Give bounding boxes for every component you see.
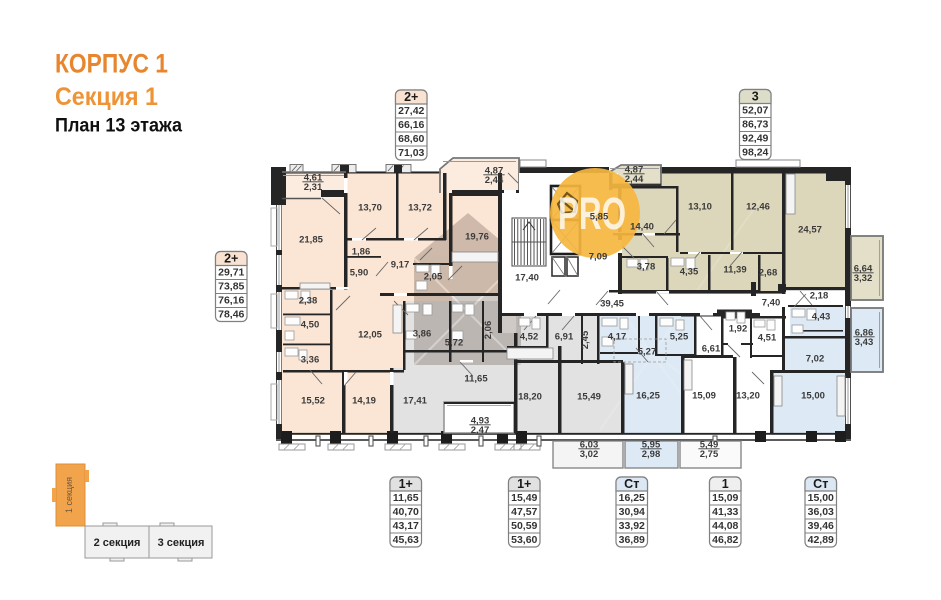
svg-text:11,65: 11,65 [464, 373, 488, 384]
svg-text:66,16: 66,16 [398, 119, 424, 131]
svg-text:2,68: 2,68 [759, 267, 778, 278]
svg-text:42,89: 42,89 [808, 534, 834, 546]
svg-text:16,25: 16,25 [636, 390, 660, 401]
svg-text:3,32: 3,32 [854, 273, 873, 284]
svg-text:45,63: 45,63 [393, 534, 419, 546]
svg-text:78,46: 78,46 [218, 309, 244, 321]
svg-text:2,38: 2,38 [299, 295, 318, 306]
svg-text:КОРПУС 1: КОРПУС 1 [55, 49, 168, 79]
svg-text:1+: 1+ [517, 477, 531, 491]
svg-text:3,02: 3,02 [580, 449, 599, 460]
svg-text:68,60: 68,60 [398, 133, 424, 145]
svg-text:15,09: 15,09 [712, 492, 738, 504]
svg-text:7,02: 7,02 [806, 353, 825, 364]
svg-text:2,18: 2,18 [810, 290, 829, 301]
svg-text:4,50: 4,50 [301, 319, 320, 330]
svg-text:12,46: 12,46 [746, 201, 770, 212]
svg-text:50,59: 50,59 [511, 520, 537, 532]
svg-text:4,51: 4,51 [758, 332, 777, 343]
svg-text:17,40: 17,40 [515, 272, 539, 283]
svg-text:3: 3 [752, 90, 759, 104]
svg-text:24,57: 24,57 [798, 224, 822, 235]
svg-text:15,49: 15,49 [577, 391, 601, 402]
svg-text:2,44: 2,44 [485, 175, 504, 186]
svg-text:47,57: 47,57 [511, 506, 537, 518]
svg-text:2,06: 2,06 [483, 321, 494, 340]
svg-text:2,45: 2,45 [580, 330, 591, 349]
svg-text:27,42: 27,42 [398, 105, 424, 117]
svg-text:53,60: 53,60 [511, 534, 537, 546]
svg-text:40,70: 40,70 [393, 506, 419, 518]
svg-text:2,31: 2,31 [304, 182, 323, 193]
svg-text:36,03: 36,03 [808, 506, 834, 518]
svg-text:4,52: 4,52 [520, 331, 539, 342]
svg-text:2,44: 2,44 [625, 174, 644, 185]
svg-text:5,27: 5,27 [638, 346, 657, 357]
svg-text:15,00: 15,00 [808, 492, 834, 504]
svg-text:36,89: 36,89 [619, 534, 645, 546]
svg-text:11,65: 11,65 [393, 492, 419, 504]
svg-text:4,35: 4,35 [680, 266, 699, 277]
svg-text:7,40: 7,40 [762, 297, 781, 308]
svg-text:18,20: 18,20 [518, 391, 542, 402]
svg-text:13,10: 13,10 [688, 201, 712, 212]
svg-text:2,75: 2,75 [700, 449, 719, 460]
svg-text:52,07: 52,07 [742, 105, 768, 117]
svg-text:6,91: 6,91 [555, 331, 574, 342]
svg-text:44,08: 44,08 [712, 520, 738, 532]
svg-text:7,09: 7,09 [589, 251, 608, 262]
svg-text:5,25: 5,25 [670, 331, 689, 342]
svg-text:3 секция: 3 секция [158, 537, 205, 549]
svg-text:12,05: 12,05 [358, 329, 382, 340]
svg-text:2,98: 2,98 [642, 449, 661, 460]
svg-text:2+: 2+ [224, 252, 238, 266]
svg-text:14,40: 14,40 [630, 221, 654, 232]
svg-text:2,47: 2,47 [471, 425, 490, 436]
svg-text:41,33: 41,33 [712, 506, 738, 518]
svg-text:13,20: 13,20 [736, 390, 760, 401]
svg-text:2+: 2+ [404, 90, 418, 104]
svg-text:21,85: 21,85 [299, 234, 323, 245]
svg-text:43,17: 43,17 [393, 520, 419, 532]
svg-text:17,41: 17,41 [403, 395, 427, 406]
svg-text:39,46: 39,46 [808, 520, 834, 532]
svg-text:1+: 1+ [399, 477, 413, 491]
svg-text:Ст: Ст [624, 477, 639, 491]
svg-text:15,49: 15,49 [511, 492, 537, 504]
svg-text:5,90: 5,90 [350, 267, 369, 278]
svg-text:6,61: 6,61 [702, 343, 721, 354]
svg-text:13,72: 13,72 [408, 202, 432, 213]
svg-text:76,16: 76,16 [218, 295, 244, 307]
svg-text:73,85: 73,85 [218, 281, 244, 293]
svg-text:30,94: 30,94 [619, 506, 645, 518]
svg-text:2 секция: 2 секция [94, 537, 141, 549]
svg-text:33,92: 33,92 [619, 520, 645, 532]
svg-text:98,24: 98,24 [742, 147, 768, 159]
svg-text:План 13 этажа: План 13 этажа [55, 115, 182, 137]
svg-text:14,19: 14,19 [352, 395, 376, 406]
svg-text:3,43: 3,43 [855, 337, 874, 348]
svg-text:15,09: 15,09 [692, 390, 716, 401]
svg-text:3,36: 3,36 [301, 354, 320, 365]
svg-text:Секция 1: Секция 1 [55, 83, 158, 111]
svg-text:29,71: 29,71 [218, 267, 244, 279]
svg-text:15,00: 15,00 [801, 390, 825, 401]
svg-text:11,39: 11,39 [723, 264, 746, 275]
svg-text:19,76: 19,76 [465, 231, 489, 242]
svg-text:13,70: 13,70 [358, 202, 382, 213]
svg-text:1: 1 [722, 477, 729, 491]
svg-text:71,03: 71,03 [398, 147, 424, 159]
svg-text:46,82: 46,82 [712, 534, 738, 546]
svg-text:3,86: 3,86 [413, 328, 432, 339]
svg-text:2,05: 2,05 [424, 271, 443, 282]
svg-text:39,45: 39,45 [600, 298, 624, 309]
svg-text:92,49: 92,49 [742, 133, 768, 145]
svg-text:4,43: 4,43 [812, 311, 831, 322]
svg-text:1,92: 1,92 [729, 323, 748, 334]
svg-text:15,52: 15,52 [301, 395, 325, 406]
svg-text:1,86: 1,86 [352, 246, 371, 257]
svg-text:16,25: 16,25 [619, 492, 645, 504]
svg-text:3,78: 3,78 [637, 261, 656, 272]
svg-text:86,73: 86,73 [742, 119, 768, 131]
svg-text:Ст: Ст [813, 477, 828, 491]
svg-text:1 секция: 1 секция [64, 477, 74, 513]
svg-text:5,72: 5,72 [445, 337, 464, 348]
svg-text:4,17: 4,17 [608, 331, 627, 342]
svg-text:9,17: 9,17 [391, 259, 410, 270]
svg-text:5,85: 5,85 [590, 211, 609, 222]
